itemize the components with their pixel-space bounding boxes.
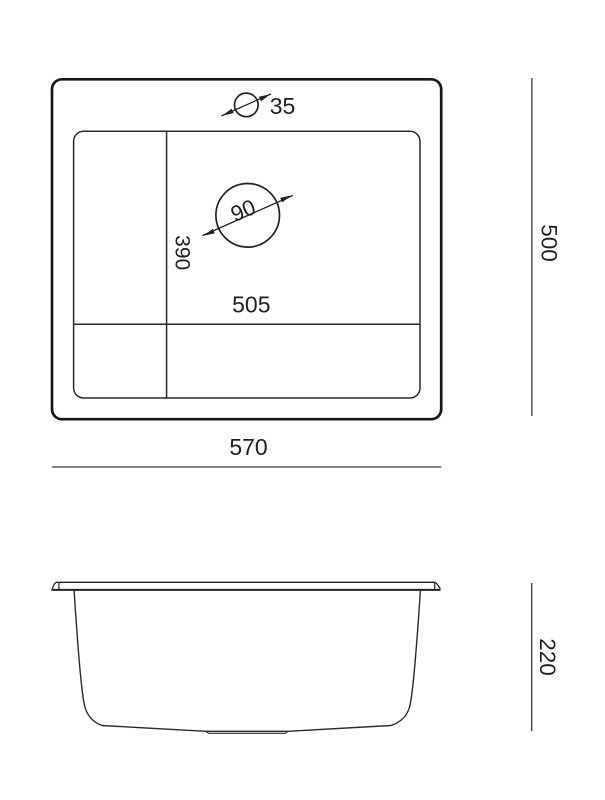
svg-text:570: 570 bbox=[229, 434, 267, 460]
svg-text:500: 500 bbox=[537, 224, 562, 262]
svg-text:220: 220 bbox=[535, 638, 560, 676]
svg-text:505: 505 bbox=[232, 291, 270, 317]
svg-text:390: 390 bbox=[171, 235, 194, 270]
svg-text:35: 35 bbox=[270, 93, 296, 119]
